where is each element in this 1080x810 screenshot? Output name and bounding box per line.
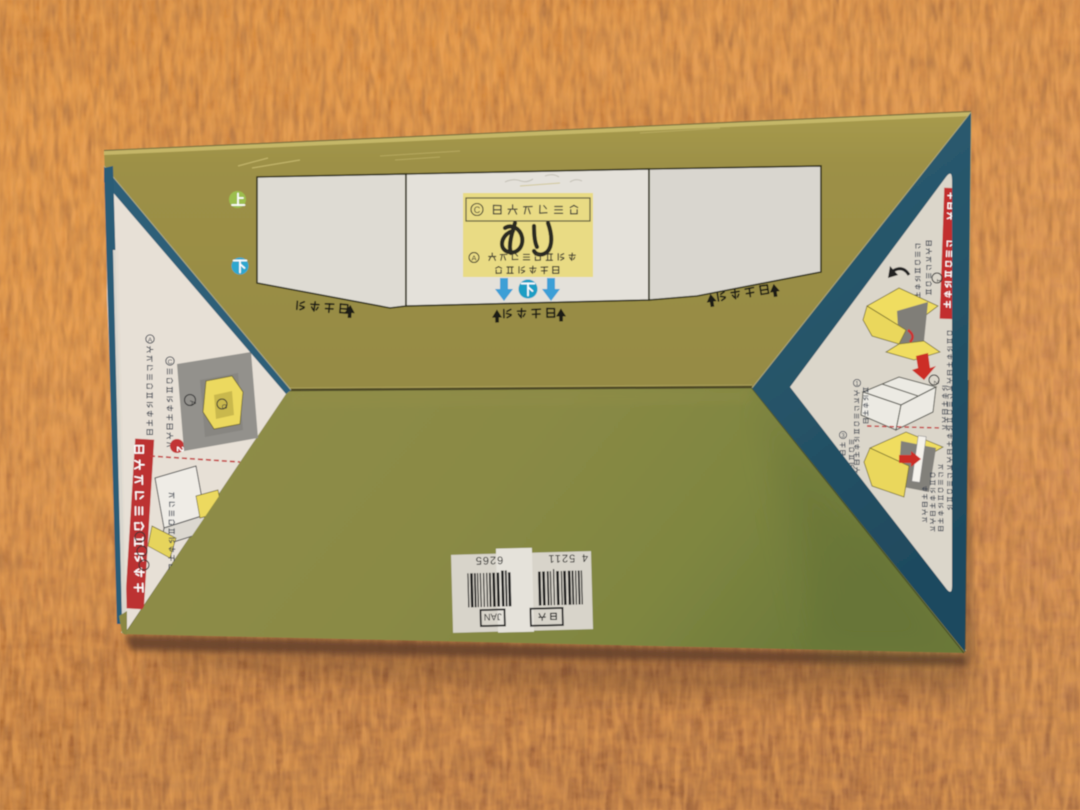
svg-text:C: C bbox=[474, 205, 481, 215]
svg-text:2: 2 bbox=[174, 446, 185, 452]
svg-text:2: 2 bbox=[932, 381, 939, 385]
svg-text:6265: 6265 bbox=[475, 553, 504, 566]
svg-text:A: A bbox=[188, 400, 197, 406]
svg-text:A: A bbox=[148, 337, 153, 344]
svg-text:1: 1 bbox=[935, 279, 942, 283]
svg-text:A: A bbox=[471, 254, 476, 263]
svg-text:JAN: JAN bbox=[483, 611, 501, 622]
svg-text:4: 4 bbox=[582, 551, 588, 563]
svg-text:C: C bbox=[168, 359, 173, 366]
svg-text:C: C bbox=[220, 404, 227, 409]
svg-text:5211: 5211 bbox=[547, 552, 575, 565]
